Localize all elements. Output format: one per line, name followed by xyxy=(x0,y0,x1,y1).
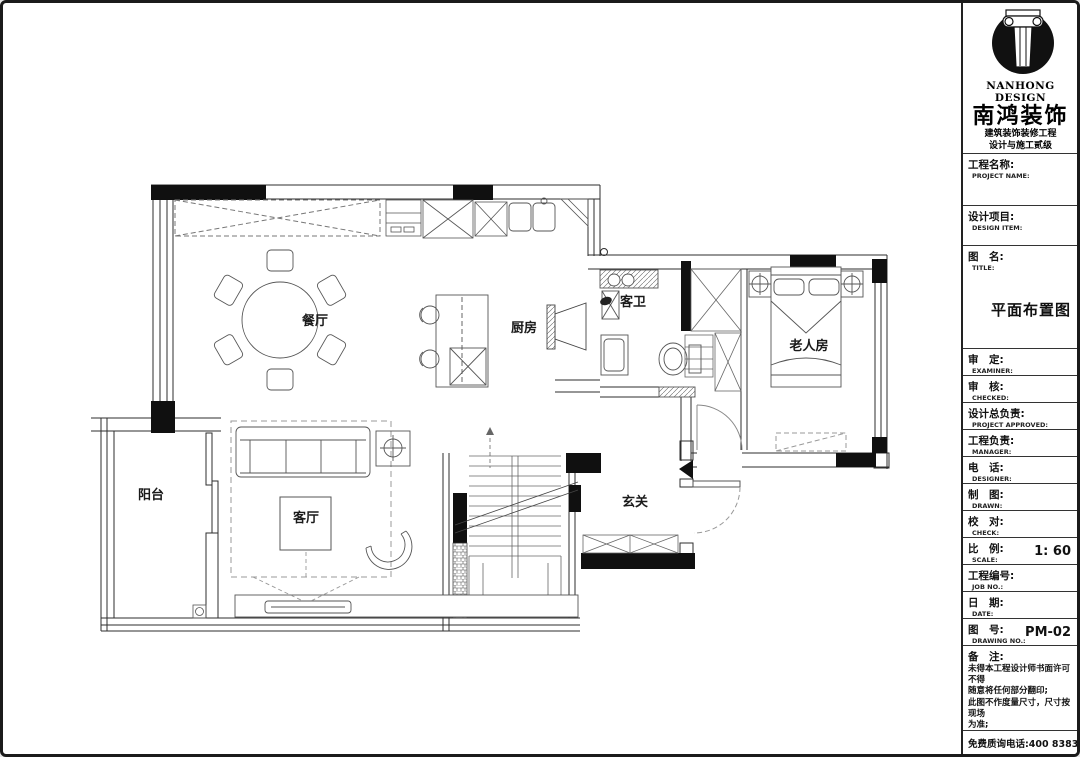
drawing-sheet: 餐厅 厨房 客卫 老人房 阳台 客厅 玄关 xyxy=(0,0,1080,757)
walls xyxy=(91,185,889,631)
field-sublabel: CHECKED: xyxy=(968,394,1073,402)
room-label-balcony: 阳台 xyxy=(138,487,164,503)
sofa xyxy=(236,427,370,477)
field-sublabel: CHECK: xyxy=(968,529,1073,537)
field-label: 设计总负责: xyxy=(968,406,1073,421)
floor-drain xyxy=(193,605,206,618)
field-drawing-no: 图 号: DRAWING NO.: PM-02 xyxy=(963,618,1077,645)
corner-shelf xyxy=(561,199,588,226)
floor-plan: 餐厅 厨房 客卫 老人房 阳台 客厅 玄关 xyxy=(3,3,956,757)
kitchen-cabinets xyxy=(175,200,380,236)
hotline-text: 免费质询电话:400 8383 168 xyxy=(968,734,1073,750)
field-label: 工程编号: xyxy=(968,568,1073,583)
drawing-title-value: 平面布置图 xyxy=(991,299,1071,320)
field-checked: 审 核: CHECKED: xyxy=(963,375,1077,402)
field-project-name: 工程名称: PROJECT NAME: xyxy=(963,153,1077,205)
field-sublabel: PROJECT NAME: xyxy=(968,172,1073,180)
company-cert-1: 建筑装饰装修工程 xyxy=(968,129,1073,140)
field-sublabel: MANAGER: xyxy=(968,448,1073,456)
field-sublabel: DESIGN ITEM: xyxy=(968,224,1073,232)
bed-bench xyxy=(776,433,846,451)
field-examiner: 审 定: EXAMINER: xyxy=(963,348,1077,375)
field-label: 审 定: xyxy=(968,352,1073,367)
room-label-guest-bath: 客卫 xyxy=(620,294,646,310)
field-sublabel: DRAWN: xyxy=(968,502,1073,510)
stairs xyxy=(455,427,578,601)
field-job-no: 工程编号: JOB NO.: xyxy=(963,564,1077,591)
company-logo-block: NANHONG DESIGN 南鸿装饰 建筑装饰装修工程 设计与施工贰级 ※NO… xyxy=(963,3,1077,153)
field-check: 校 对: CHECK: xyxy=(963,510,1077,537)
note-line: 随意将任何部分翻印; xyxy=(968,686,1073,697)
range-hob xyxy=(547,303,586,350)
shoe-cabinet xyxy=(583,535,678,553)
field-label: 工程名称: xyxy=(968,157,1073,172)
hotline: 免费质询电话:400 8383 168 xyxy=(963,730,1077,754)
field-drawing-title: 图 名: TITLE: 平面布置图 xyxy=(963,245,1077,348)
company-name-en: NANHONG DESIGN xyxy=(968,80,1073,104)
field-sublabel: TITLE: xyxy=(968,264,1073,272)
column-logo-icon xyxy=(968,7,1077,75)
kitchen-island xyxy=(420,295,488,387)
room-label-kitchen: 厨房 xyxy=(511,320,537,336)
bed xyxy=(749,267,863,387)
field-sublabel: DESIGNER: xyxy=(968,475,1073,483)
field-label: 制 图: xyxy=(968,487,1073,502)
entry-door xyxy=(693,481,740,533)
tall-cabinet xyxy=(423,200,473,238)
entry-arrow-icon xyxy=(679,460,693,479)
field-label: 日 期: xyxy=(968,595,1073,610)
room-label-entry: 玄关 xyxy=(622,494,648,510)
field-sublabel: JOB NO.: xyxy=(968,583,1073,591)
kitchen-sink xyxy=(509,198,555,231)
bedroom-door xyxy=(697,405,742,450)
field-label: 图 名: xyxy=(968,249,1073,264)
field-sublabel: EXAMINER: xyxy=(968,367,1073,375)
field-label: 审 核: xyxy=(968,379,1073,394)
field-scale: 比 例: SCALE: 1: 60 xyxy=(963,537,1077,564)
room-label-living: 客厅 xyxy=(293,510,319,526)
field-drawn: 制 图: DRAWN: xyxy=(963,483,1077,510)
field-label: 工程负责: xyxy=(968,433,1073,448)
gas-unit xyxy=(475,202,507,236)
field-design-item: 设计项目: DESIGN ITEM: xyxy=(963,205,1077,245)
note-line: 未得本工程设计师书面许可不得 xyxy=(968,664,1073,686)
notes-title: 备 注: xyxy=(968,649,1073,664)
field-label: 设计项目: xyxy=(968,209,1073,224)
field-sublabel: DATE: xyxy=(968,610,1073,618)
drawing-no-value: PM-02 xyxy=(1025,625,1071,640)
company-cert-2: 设计与施工贰级 xyxy=(968,141,1073,152)
side-table-lamp xyxy=(376,431,410,466)
lounge-chair xyxy=(366,531,412,569)
title-block: NANHONG DESIGN 南鸿装饰 建筑装饰装修工程 设计与施工贰级 ※NO… xyxy=(961,3,1077,754)
cooktop-unit xyxy=(386,200,421,236)
field-sublabel: PROJECT APPROVED: xyxy=(968,421,1073,429)
company-name-cn: 南鸿装饰 xyxy=(968,104,1073,129)
notes-block: 备 注: 未得本工程设计师书面许可不得 随意将任何部分翻印; 此图不作度量尺寸，… xyxy=(963,645,1077,730)
field-manager: 工程负责: MANAGER: xyxy=(963,429,1077,456)
field-project-approved: 设计总负责: PROJECT APPROVED: xyxy=(963,402,1077,429)
note-line: 为准; xyxy=(968,720,1073,730)
field-label: 电 话: xyxy=(968,460,1073,475)
room-label-dining: 餐厅 xyxy=(301,313,328,329)
room-label-elder-room: 老人房 xyxy=(788,338,828,354)
scale-value: 1: 60 xyxy=(1034,544,1071,559)
note-line: 此图不作度量尺寸，尺寸按现场 xyxy=(968,698,1073,720)
field-label: 校 对: xyxy=(968,514,1073,529)
field-date: 日 期: DATE: xyxy=(963,591,1077,618)
field-designer-phone: 电 话: DESIGNER: xyxy=(963,456,1077,483)
